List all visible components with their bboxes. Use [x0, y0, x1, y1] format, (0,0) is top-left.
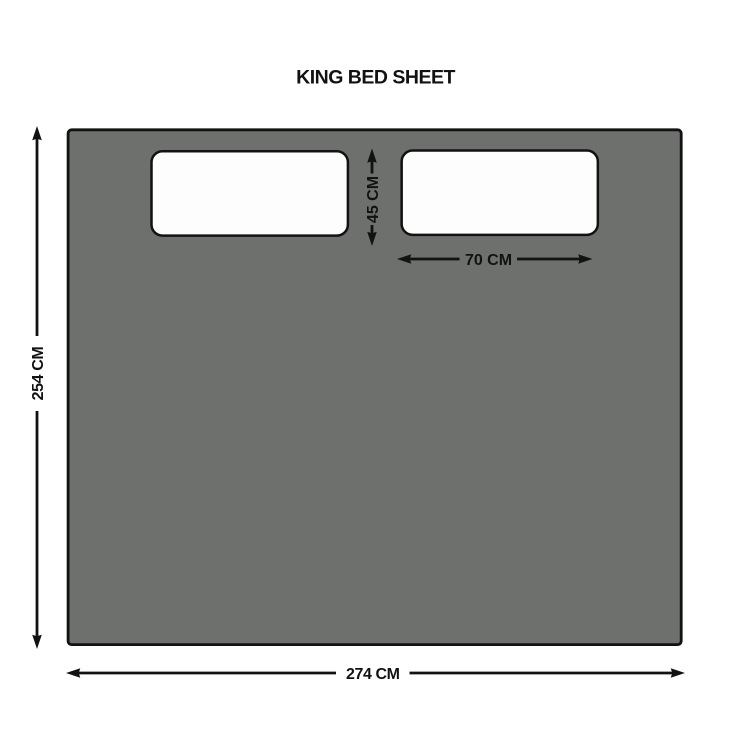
svg-text:45 CM: 45 CM	[365, 176, 382, 223]
svg-text:KING BED SHEET: KING BED SHEET	[296, 67, 455, 89]
svg-text:274 CM: 274 CM	[346, 666, 400, 683]
svg-text:254 CM: 254 CM	[30, 347, 47, 401]
svg-text:70 CM: 70 CM	[465, 252, 512, 269]
